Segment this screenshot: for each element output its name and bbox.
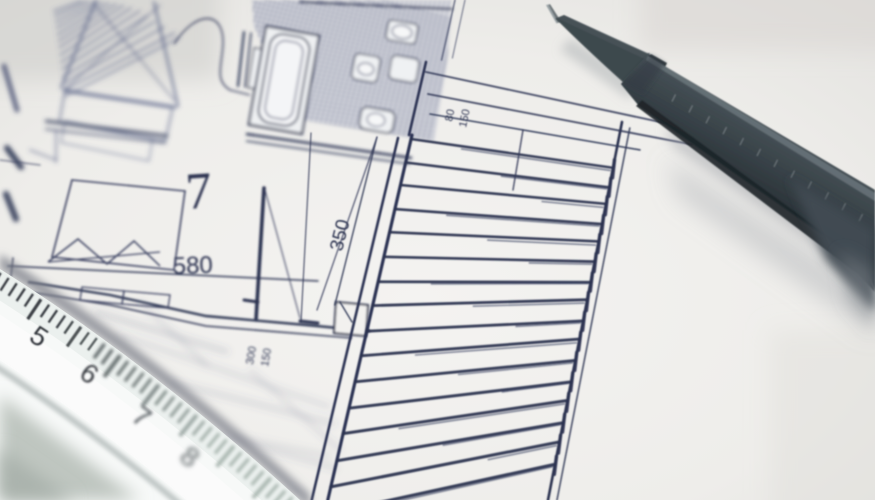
svg-text:7: 7 [184,162,214,221]
svg-text:580: 580 [172,252,213,280]
svg-text:80: 80 [443,108,457,122]
